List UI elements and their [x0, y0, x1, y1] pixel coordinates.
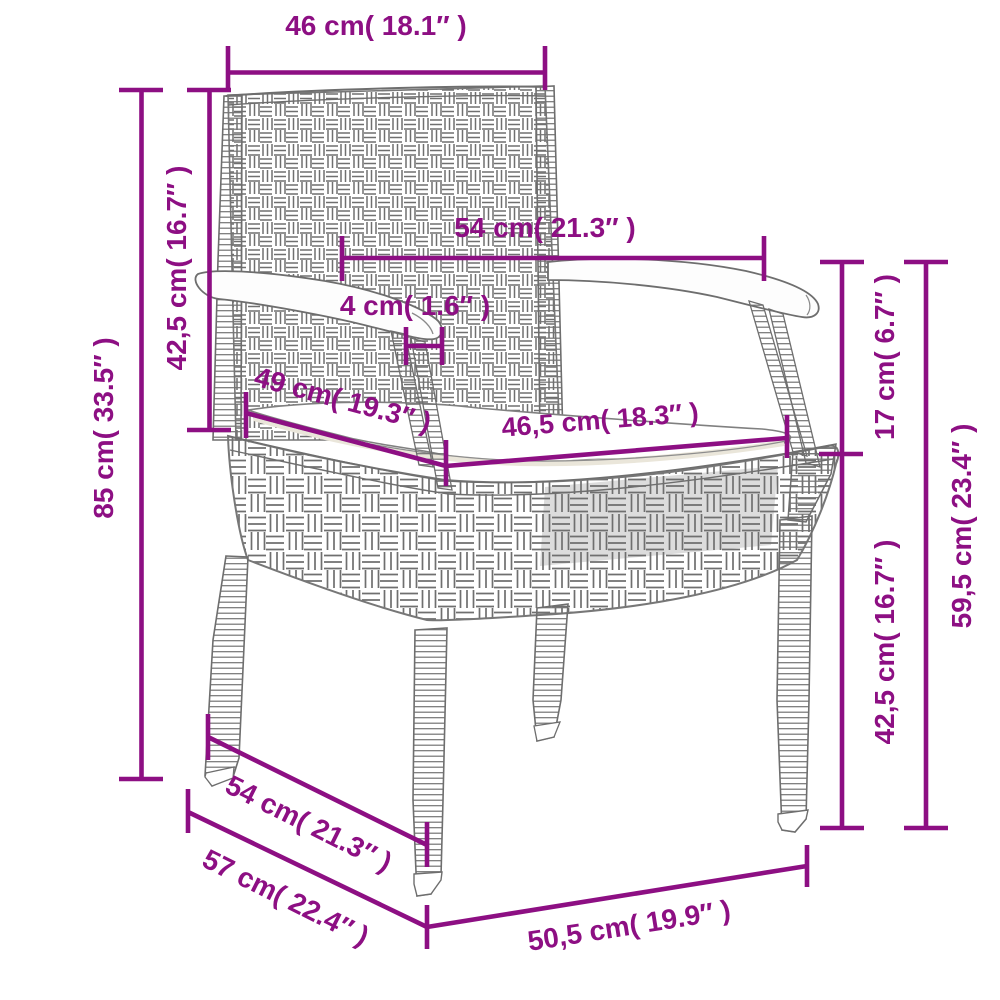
- svg-text:17 cm( 6.7″ ): 17 cm( 6.7″ ): [869, 274, 900, 440]
- svg-text:42,5 cm( 16.7″ ): 42,5 cm( 16.7″ ): [161, 166, 192, 371]
- svg-text:46 cm( 18.1″ ): 46 cm( 18.1″ ): [285, 10, 467, 41]
- svg-text:85 cm( 33.5″ ): 85 cm( 33.5″ ): [88, 337, 119, 519]
- svg-text:54 cm( 21.3″ ): 54 cm( 21.3″ ): [454, 212, 636, 243]
- svg-text:59,5 cm( 23.4″ ): 59,5 cm( 23.4″ ): [946, 424, 977, 629]
- svg-text:4 cm( 1.6″ ): 4 cm( 1.6″ ): [340, 290, 490, 321]
- svg-text:42,5 cm( 16.7″ ): 42,5 cm( 16.7″ ): [869, 540, 900, 745]
